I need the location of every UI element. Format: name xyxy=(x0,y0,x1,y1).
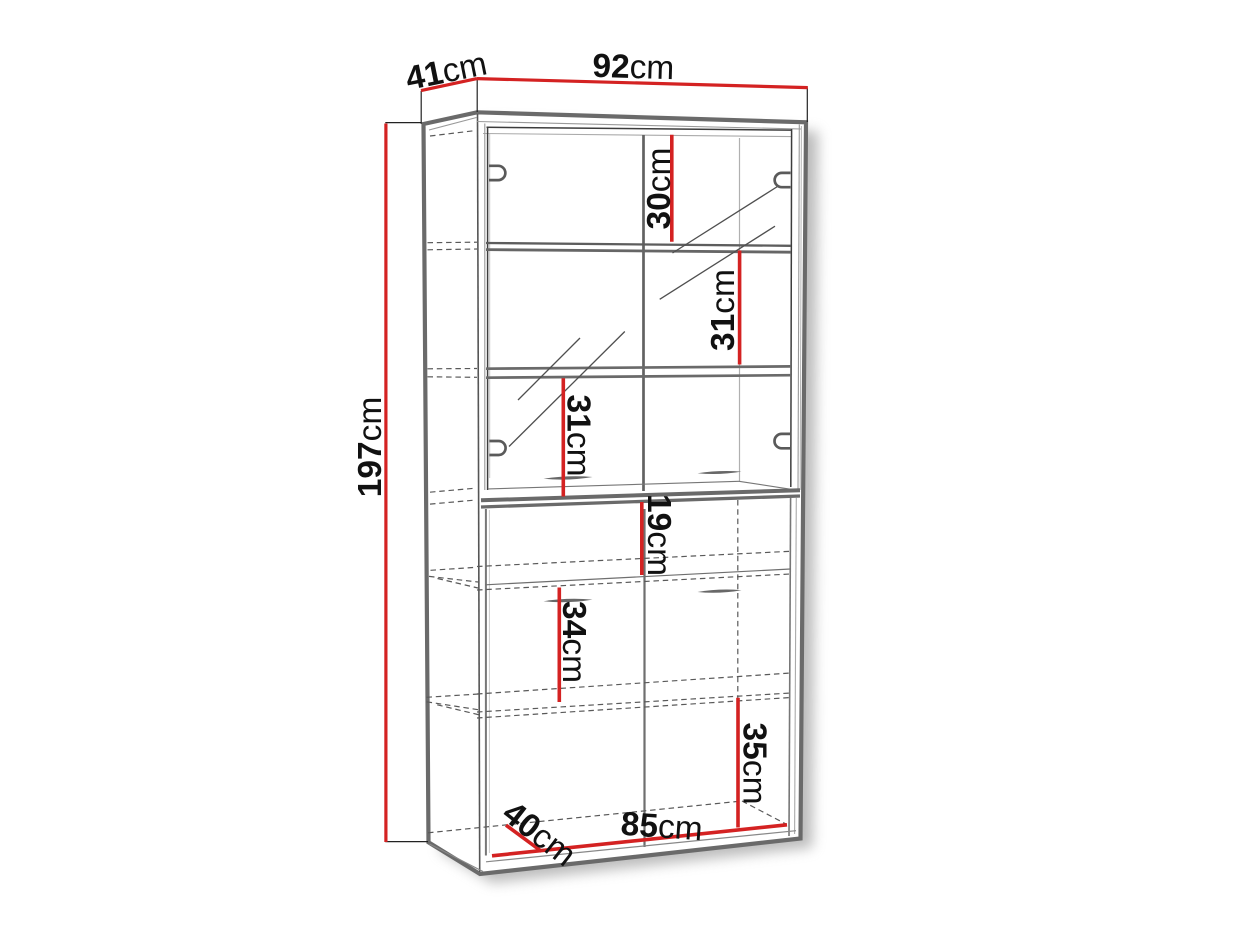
svg-text:197cm: 197cm xyxy=(352,397,389,498)
svg-text:92cm: 92cm xyxy=(592,48,675,87)
svg-text:31cm: 31cm xyxy=(705,269,742,351)
svg-text:19cm: 19cm xyxy=(640,494,677,576)
svg-text:35cm: 35cm xyxy=(736,723,773,805)
svg-text:31cm: 31cm xyxy=(560,395,597,477)
svg-text:85cm: 85cm xyxy=(620,806,704,849)
svg-text:30cm: 30cm xyxy=(641,148,678,230)
svg-text:34cm: 34cm xyxy=(555,601,592,683)
